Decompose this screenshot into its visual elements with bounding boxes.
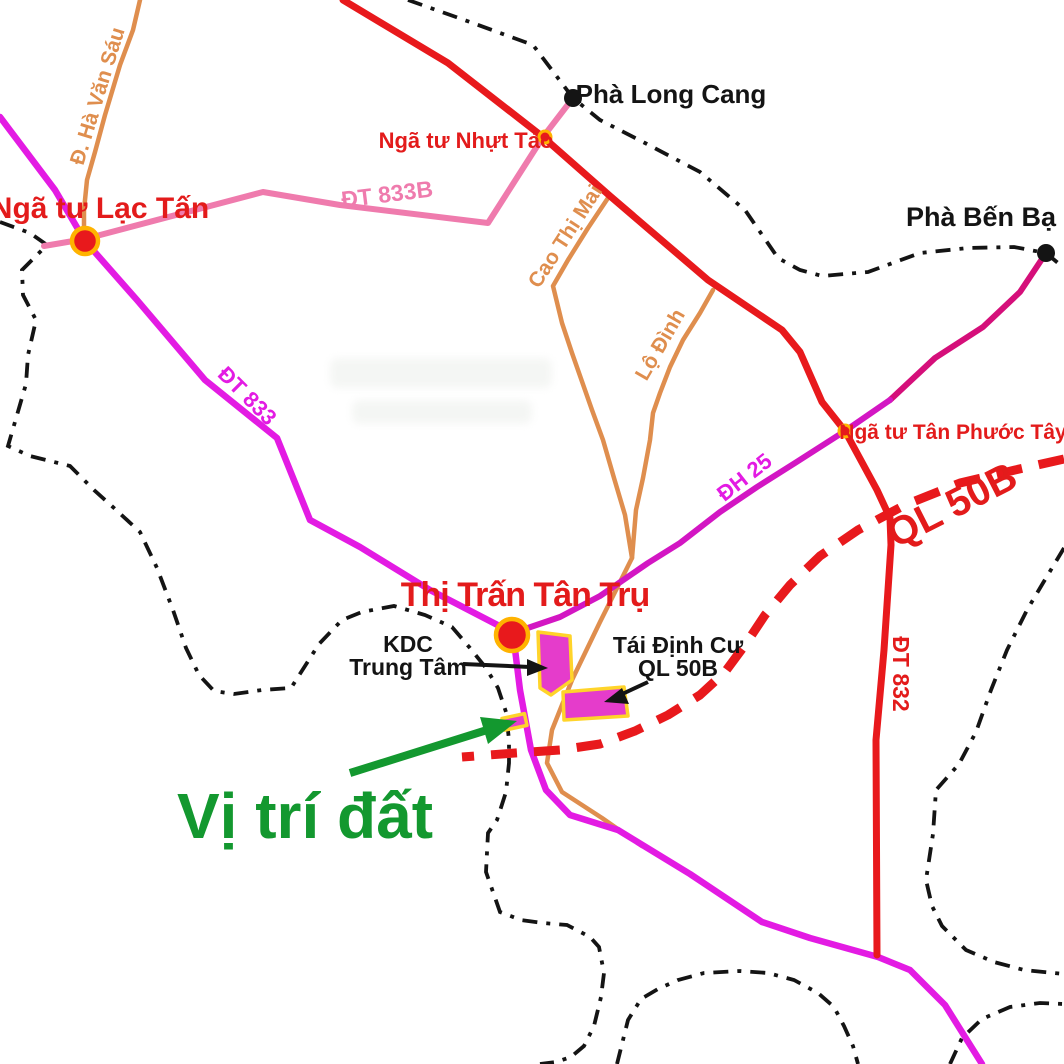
kdc-label: KDC Trung Tâm: [349, 631, 467, 680]
boundary-east: [926, 548, 1064, 974]
node-lac-tan: [72, 228, 98, 254]
ferry-long-cang-label: Phà Long Cang: [576, 79, 767, 109]
map-canvas: Phà Long Cang Phà Bến Bạ Ngã tư Lạc Tấn …: [0, 0, 1064, 1064]
map-svg: Phà Long Cang Phà Bến Bạ Ngã tư Lạc Tấn …: [0, 0, 1064, 1064]
plot-kdc-trung-tam: [538, 632, 572, 695]
site-label: Vị trí đất: [177, 780, 433, 852]
intersection-tan-phuoc-tay-label: Ngã tư Tân Phước Tây: [839, 421, 1064, 444]
intersection-nhut-tao-label: Ngã tư Nhựt Tảo: [379, 128, 554, 153]
node-tan-tru: [496, 619, 528, 651]
road-cao-thi-mai-label: Cao Thị Mai: [524, 181, 607, 292]
tdc-label: Tái Định Cư QL 50B: [613, 632, 744, 681]
kdc-arrow: [463, 659, 548, 676]
ferry-ben-ba-label: Phà Bến Bạ: [906, 202, 1057, 232]
site-arrow: [350, 717, 517, 773]
ghost-smudge: [330, 358, 552, 388]
kdc-label-line2: Trung Tâm: [349, 654, 467, 680]
town-tan-tru-label: Thị Trấn Tân Trụ: [401, 576, 649, 614]
ghost-smudge: [352, 400, 532, 424]
road-dt833b-label: ĐT 833B: [340, 176, 435, 213]
road-dt832-label: ĐT 832: [888, 636, 914, 711]
road-ql50b-label: QL 50B: [880, 454, 1024, 556]
ferry-ben-ba-dot: [1037, 244, 1055, 262]
boundary-southeast-corner: [950, 1003, 1064, 1064]
boundary-south-blob: [617, 971, 858, 1064]
road-dh25-upper-path: [890, 253, 1046, 400]
intersection-lac-tan-label: Ngã tư Lạc Tấn: [0, 192, 209, 225]
tdc-label-line2: QL 50B: [638, 655, 718, 681]
